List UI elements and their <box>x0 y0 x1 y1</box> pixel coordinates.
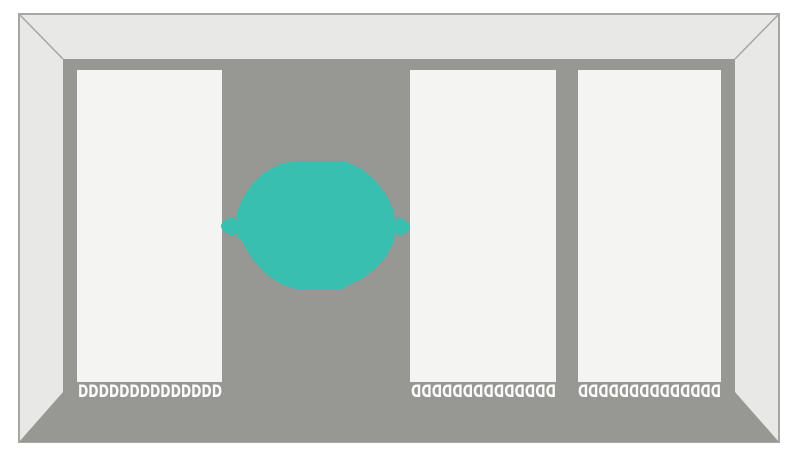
right-panel-teeth-row: DDDDDDDDDDDDDD <box>578 382 721 402</box>
middle-panel-teeth-row: DDDDDDDDDDDDDD <box>411 382 556 402</box>
left-panel-teeth-row: DDDDDDDDDDDDDD <box>78 382 222 402</box>
right-panel <box>578 70 721 382</box>
middle-panel-teeth-mirror-group: DDDDDDDDDDDDDD <box>411 382 556 402</box>
middle-panel <box>410 70 556 382</box>
room-scene: DDDDDDDDDDDDDD DDDDDDDDDDDDDD DDDDDDDDDD… <box>0 0 800 457</box>
illustration-canvas: DDDDDDDDDDDDDD DDDDDDDDDDDDDD DDDDDDDDDD… <box>0 0 800 457</box>
left-panel <box>77 70 222 382</box>
right-panel-teeth-mirror-group: DDDDDDDDDDDDDD <box>578 382 721 402</box>
